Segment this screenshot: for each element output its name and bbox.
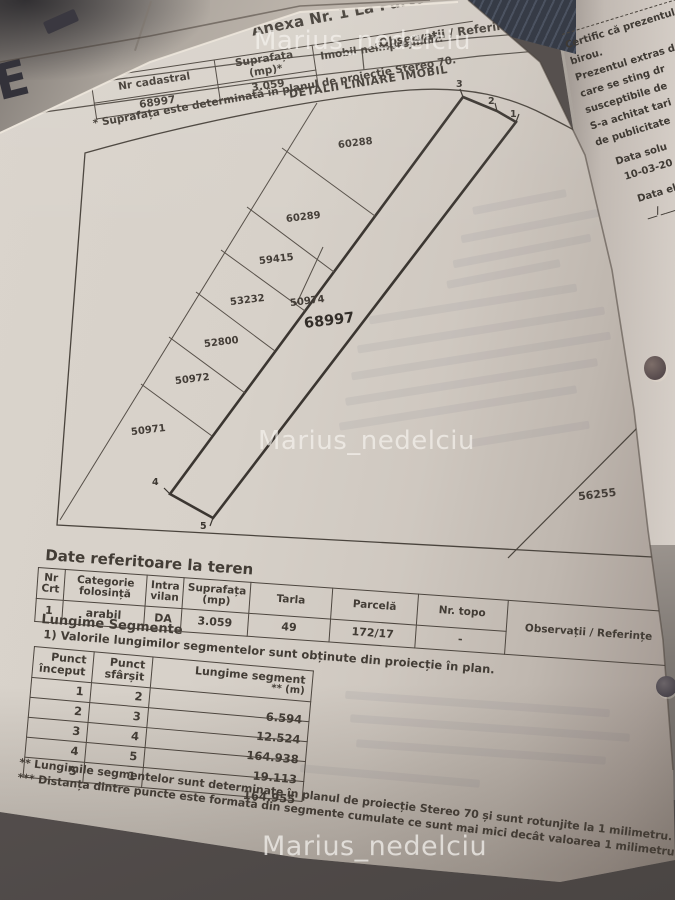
col-area: Suprafața (mp) xyxy=(182,578,251,614)
col-intravilan: Intra vilan xyxy=(145,575,184,608)
col-point-end: Punct sfârșit xyxy=(91,652,152,688)
plan-point-label: 5 xyxy=(200,521,207,532)
col-point-start: Punct început xyxy=(32,647,94,683)
punch-hole xyxy=(656,676,675,697)
watermark: Marius_nedelciu xyxy=(262,831,487,862)
watermark: Marius_nedelciu xyxy=(254,26,471,56)
col-crt: Nr Crt xyxy=(36,568,65,601)
plan-point-label: 4 xyxy=(152,477,159,488)
cell-tarla: 49 xyxy=(247,613,330,642)
bleed-text-line xyxy=(345,691,610,717)
bleed-text-line xyxy=(356,739,606,764)
cell-topo: - xyxy=(415,625,506,654)
cell-parcel: 172/17 xyxy=(329,619,416,648)
bleed-text-line xyxy=(350,714,630,742)
col-observations: Observații / Referințe xyxy=(504,600,673,665)
bleed-text-line xyxy=(300,764,480,788)
watermark: Marius_nedelciu xyxy=(258,426,475,456)
cell-area: 3.059 xyxy=(181,609,249,637)
punch-hole xyxy=(644,356,666,380)
photo-of-cadastral-document: Certific că prezentul birou. Prezentul e… xyxy=(0,0,675,900)
